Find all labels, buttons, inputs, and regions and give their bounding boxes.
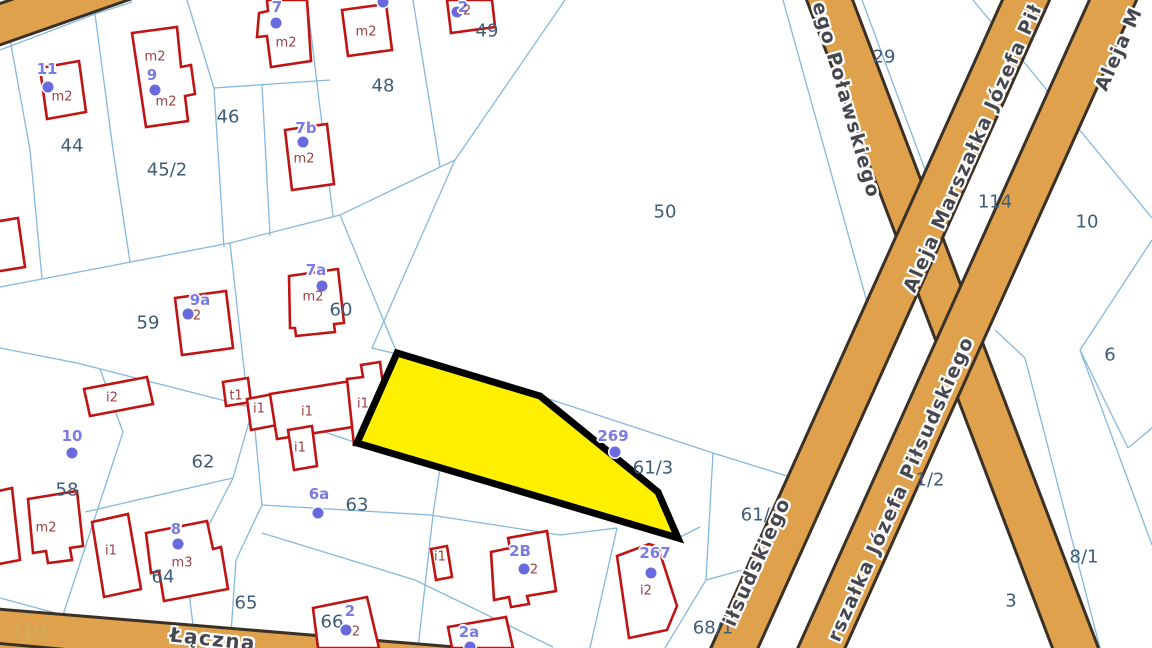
building-outline [288,426,317,470]
parcel-boundary [678,527,700,538]
building-outline [0,218,25,272]
parcel-boundary [1080,240,1152,350]
building-outline [84,377,153,416]
parcel-boundary [1128,428,1152,448]
address-point-dot [465,642,476,648]
parcel-boundary [340,215,397,353]
parcel-boundary [262,85,270,236]
parcel-boundary [214,80,330,88]
address-point-dot [43,82,54,93]
address-point-dot [271,18,282,29]
parcel-boundary [706,453,713,580]
building-outline [28,491,83,563]
parcel-boundary [590,528,617,648]
building-outline [270,381,359,439]
parcel-boundary [85,408,253,512]
parcel-boundary [1080,350,1152,545]
address-point-dot [67,448,78,459]
building-outline [175,291,233,355]
cadastral-map-canvas[interactable]: 4445/246484950291141061/28/1359606258636… [0,0,1152,648]
selected-parcel-highlight[interactable] [357,353,678,538]
address-point-dot [183,309,194,320]
building-outline [92,514,141,597]
address-point-dot [313,508,324,519]
address-point-dot [341,625,352,636]
building-outline [285,124,334,190]
parcel-boundary [995,330,1025,358]
address-point-dot [610,447,621,458]
address-point-dot [150,85,161,96]
address-point-dot [519,564,530,575]
address-point-dot [298,137,309,148]
building-outline [146,521,228,601]
building-outline [0,488,20,565]
parcel-boundary [95,14,130,262]
address-point-dot [317,281,328,292]
building-outline [257,0,311,67]
parcel-boundary [413,0,440,167]
parcel-boundary [1080,350,1128,448]
parcel-boundary [230,408,262,648]
building-outline [313,597,379,648]
building-outline [289,269,344,336]
map-geometry-layer [0,0,1152,648]
address-point-dot [646,568,657,579]
address-point-dot [452,7,463,18]
building-outline [342,4,392,56]
parcel-boundary [187,0,224,247]
building-outline [431,546,452,580]
building-outline [448,617,513,648]
building-outline [617,544,677,638]
parcel-boundary [372,160,455,354]
address-point-dot [173,539,184,550]
building-outline [132,27,195,127]
buildings-layer [0,0,677,648]
